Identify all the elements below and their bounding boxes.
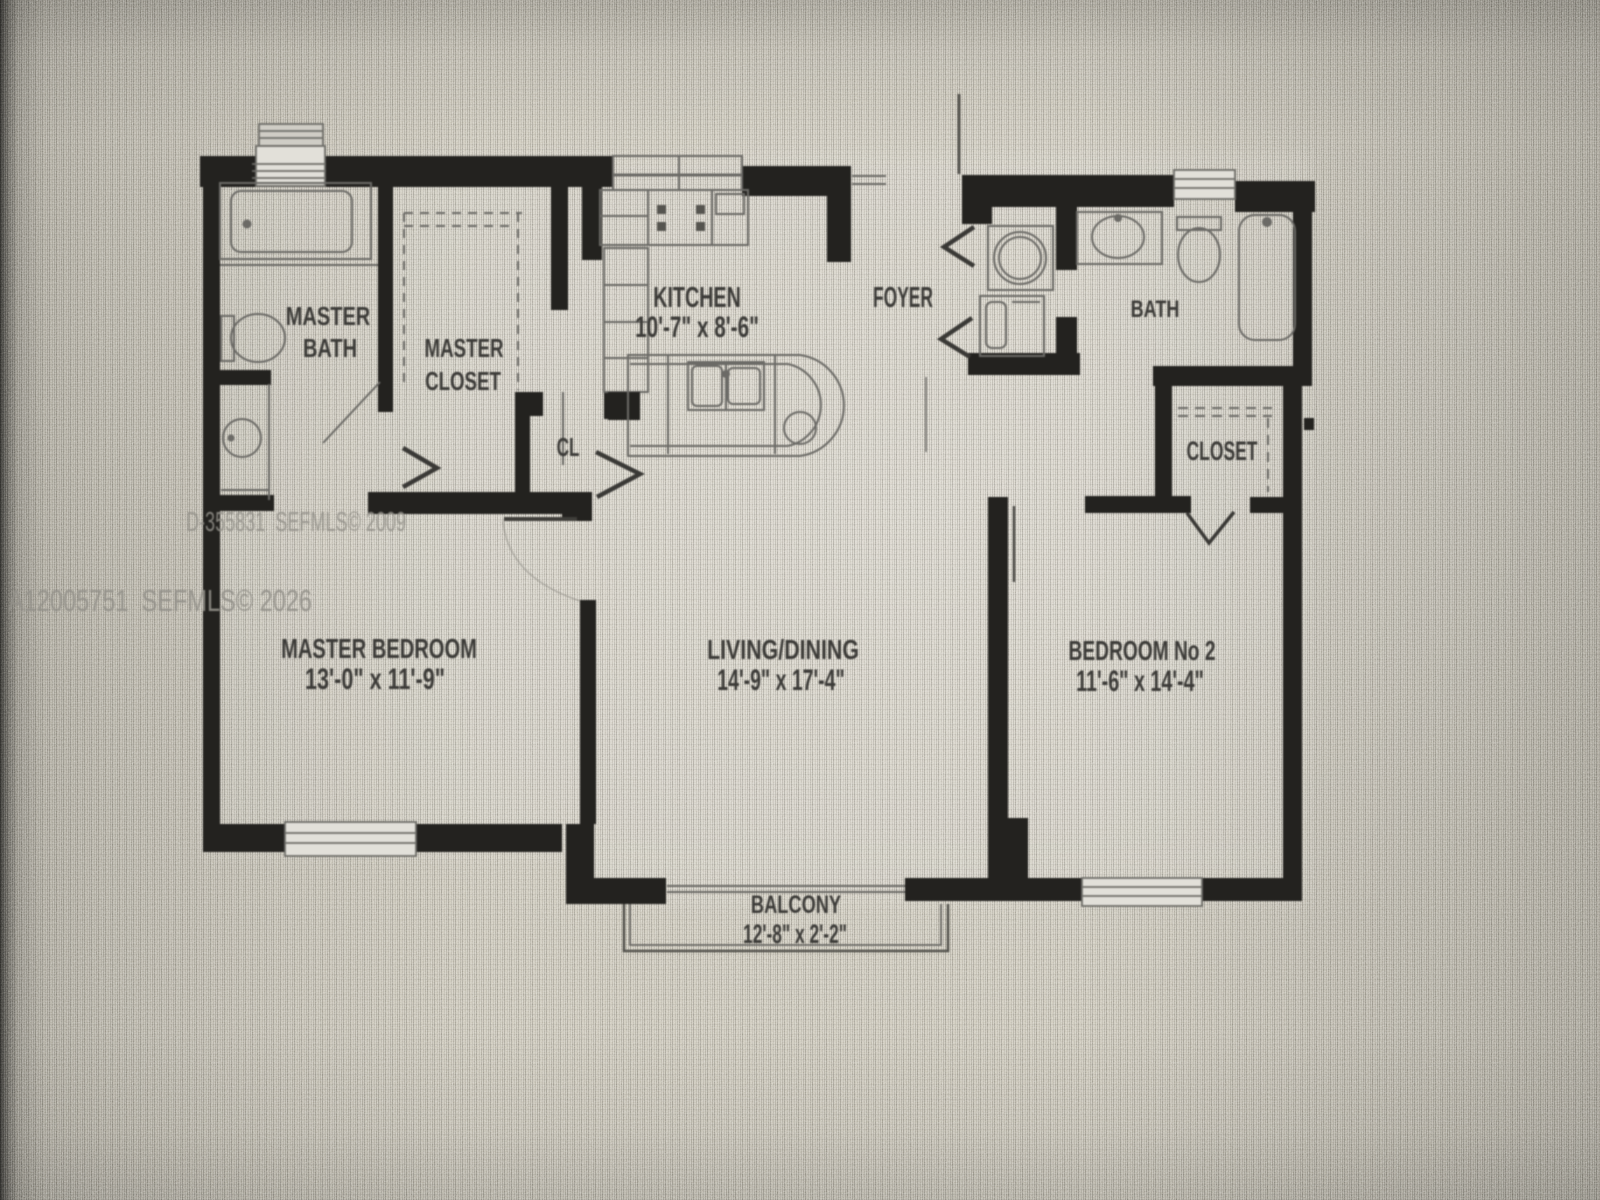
svg-text:MASTER BEDROOM: MASTER BEDROOM	[281, 634, 477, 665]
svg-text:LIVING/DINING: LIVING/DINING	[707, 634, 859, 665]
svg-text:MASTER: MASTER	[286, 301, 371, 330]
svg-text:14'-9" x 17'-4": 14'-9" x 17'-4"	[717, 664, 844, 697]
svg-text:D-355831 SEFMLS© 2009: D-355831 SEFMLS© 2009	[186, 506, 406, 537]
svg-text:A12005751 SEFMLS© 2026: A12005751 SEFMLS© 2026	[8, 583, 312, 618]
svg-text:10'-7" x 8'-6": 10'-7" x 8'-6"	[635, 311, 759, 344]
svg-text:BATH: BATH	[1131, 297, 1180, 323]
svg-text:11'-6" x 14'-4": 11'-6" x 14'-4"	[1076, 665, 1204, 698]
svg-text:13'-0" x 11'-9": 13'-0" x 11'-9"	[305, 661, 445, 695]
svg-text:MASTER: MASTER	[425, 333, 504, 363]
svg-text:12'-8" x 2'-2": 12'-8" x 2'-2"	[743, 918, 847, 949]
svg-text:FOYER: FOYER	[873, 282, 933, 315]
svg-text:CLOSET: CLOSET	[425, 366, 501, 396]
svg-text:CLOSET: CLOSET	[1187, 435, 1258, 466]
svg-text:BATH: BATH	[303, 333, 357, 362]
svg-text:BALCONY: BALCONY	[751, 890, 842, 919]
svg-text:BEDROOM No 2: BEDROOM No 2	[1069, 635, 1216, 667]
svg-text:KITCHEN: KITCHEN	[653, 282, 741, 314]
svg-text:CL: CL	[557, 432, 580, 462]
